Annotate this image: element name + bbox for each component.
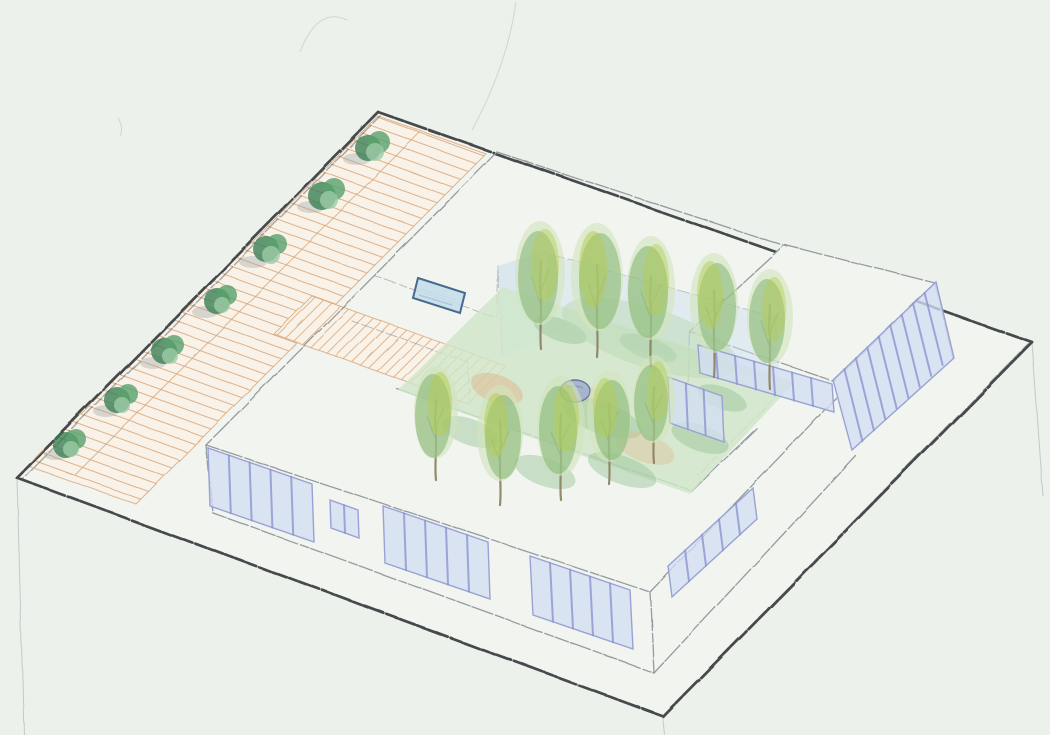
axonometric-sketch: Axonometric sketch of a single-storey co…: [0, 0, 1050, 735]
sketch-page: Axonometric sketch of a single-storey co…: [0, 0, 1050, 735]
